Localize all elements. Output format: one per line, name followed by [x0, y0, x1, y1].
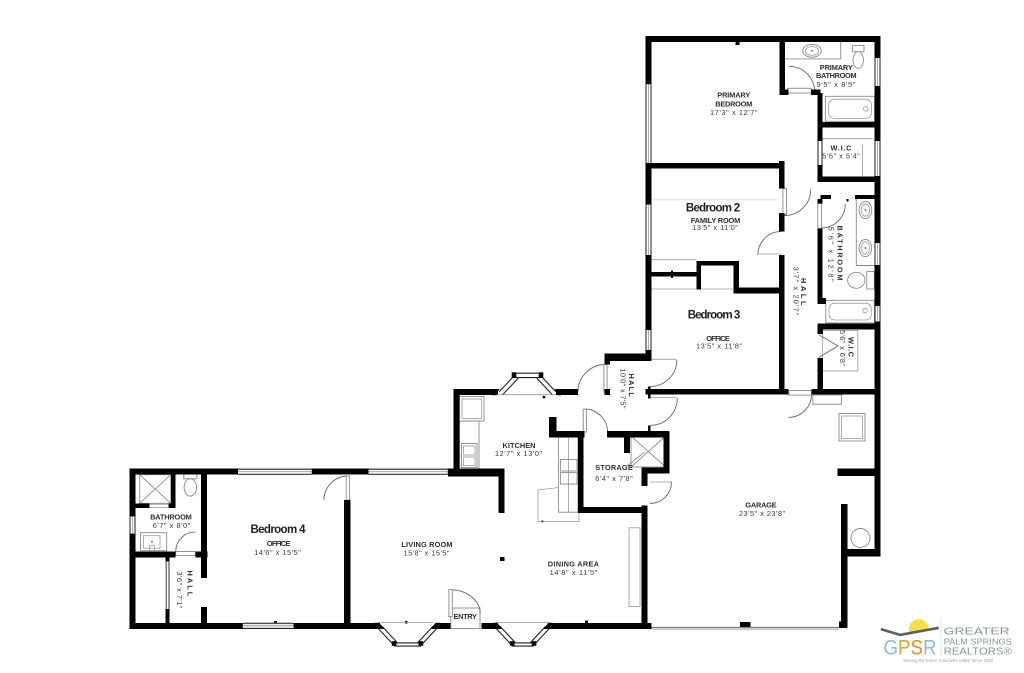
svg-text:6'4" x 7'8": 6'4" x 7'8" — [595, 474, 633, 483]
svg-text:13'5" x 11'0": 13'5" x 11'0" — [692, 223, 738, 232]
svg-text:9'5" x 8'5": 9'5" x 8'5" — [817, 80, 856, 89]
svg-text:Bedroom 4: Bedroom 4 — [251, 524, 307, 536]
svg-text:BATHROOM: BATHROOM — [150, 512, 192, 521]
svg-text:Serving the Entire Coachella V: Serving the Entire Coachella Valley Sinc… — [903, 658, 993, 663]
svg-text:GPSR: GPSR — [884, 637, 937, 660]
svg-text:REALTORS®: REALTORS® — [944, 646, 1013, 657]
svg-text:5'6" x 6'8": 5'6" x 6'8" — [838, 330, 847, 366]
svg-text:23'5" x 23'8": 23'5" x 23'8" — [739, 509, 786, 518]
svg-text:Bedroom 3: Bedroom 3 — [688, 309, 741, 321]
svg-text:OFFICE: OFFICE — [267, 539, 291, 548]
svg-text:Bedroom 2: Bedroom 2 — [686, 202, 740, 214]
svg-text:10'0" x 7'5": 10'0" x 7'5" — [618, 369, 627, 409]
svg-text:15'8" x 15'5": 15'8" x 15'5" — [404, 549, 450, 558]
svg-text:3'7" x 20'7": 3'7" x 20'7" — [792, 267, 801, 316]
svg-text:STORAGE: STORAGE — [595, 463, 633, 472]
svg-text:PALM SPRINGS: PALM SPRINGS — [944, 636, 1012, 646]
svg-text:BATHROOM: BATHROOM — [816, 71, 857, 80]
svg-text:3'6" x 7'1": 3'6" x 7'1" — [175, 571, 184, 608]
svg-text:12'7" x 13'0": 12'7" x 13'0" — [495, 449, 543, 458]
svg-text:17'3" x 12'7": 17'3" x 12'7" — [710, 108, 758, 117]
svg-text:14'8" x 11'5": 14'8" x 11'5" — [550, 568, 598, 577]
svg-text:BEDROOM: BEDROOM — [715, 99, 752, 108]
svg-text:13'5" x 11'8": 13'5" x 11'8" — [696, 342, 742, 351]
svg-text:6'7" x 8'0": 6'7" x 8'0" — [153, 521, 191, 530]
svg-text:ENTRY: ENTRY — [454, 612, 477, 621]
svg-text:BATHROOM: BATHROOM — [835, 226, 844, 281]
svg-text:5'6" x 12'8": 5'6" x 12'8" — [827, 227, 836, 282]
svg-text:LIVING ROOM: LIVING ROOM — [401, 540, 452, 549]
svg-text:14'6" x 15'5": 14'6" x 15'5" — [254, 548, 301, 557]
svg-text:5'6" x 5'4": 5'6" x 5'4" — [822, 152, 860, 161]
svg-text:PRIMARY: PRIMARY — [717, 91, 750, 100]
